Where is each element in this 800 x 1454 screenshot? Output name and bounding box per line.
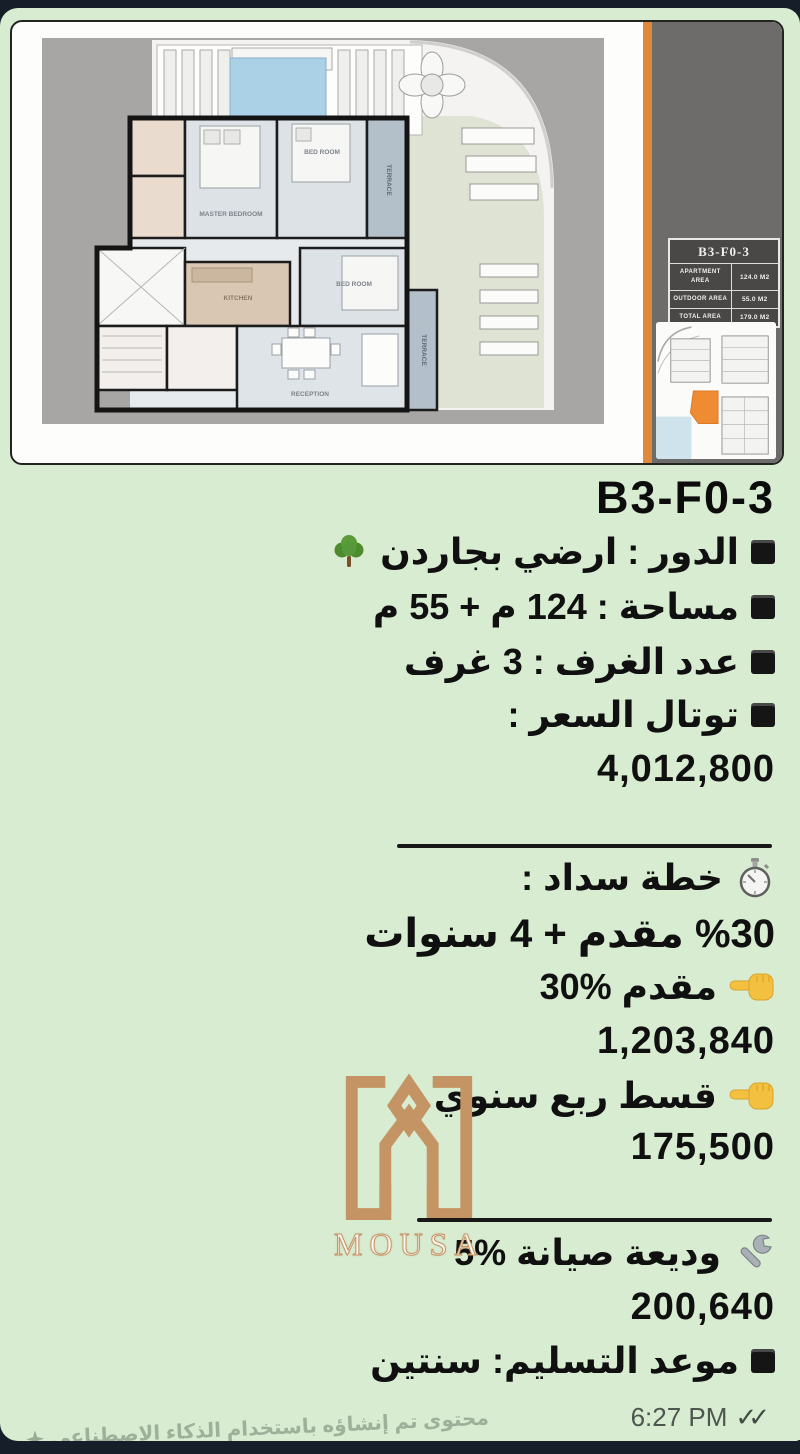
room-label-bed-top: BED ROOM	[304, 149, 340, 156]
downpayment-value: 1,203,840	[597, 1020, 775, 1063]
brand-watermark: MOUSA	[334, 1074, 484, 1263]
installment-value: 175,500	[631, 1126, 775, 1169]
unit-table-title: B3-F0-3	[670, 240, 778, 264]
divider-line	[397, 844, 772, 848]
floor-line-text: الدور : ارضي بجاردن	[380, 531, 739, 573]
whatsapp-chat-screen: MASTER BEDROOM BED ROOM BED ROOM KITCHEN…	[0, 0, 800, 1454]
payment-plan-heading: خطة سداد :	[521, 856, 775, 900]
wrench-icon	[733, 1232, 775, 1274]
rooms-line: عدد الغرف : 3 غرف	[404, 641, 775, 683]
total-price-line: توتال السعر :	[507, 694, 775, 736]
table-row: OUTDOOR AREA 55.0 M2	[670, 291, 778, 309]
black-square-icon	[751, 1349, 775, 1373]
delivery-text: موعد التسليم: سنتين	[370, 1340, 739, 1382]
maintenance-value-line: 200,640	[631, 1286, 775, 1329]
maintenance-line: وديعة صيانة %5	[454, 1232, 775, 1274]
tree-icon	[330, 533, 368, 571]
total-price-label: توتال السعر :	[507, 694, 739, 736]
room-label-master: MASTER BEDROOM	[199, 211, 262, 218]
timestamp: 6:27 PM	[631, 1402, 728, 1433]
area-row-value: 124.0 M2	[732, 264, 778, 290]
room-label-bed-mid: BED ROOM	[336, 281, 372, 288]
area-row-label: APARTMENT AREA	[670, 264, 732, 290]
floor-plan-area: MASTER BEDROOM BED ROOM BED ROOM KITCHEN…	[42, 38, 604, 424]
floor-plan-graphic: MASTER BEDROOM BED ROOM BED ROOM KITCHEN…	[42, 38, 604, 424]
black-square-icon	[751, 650, 775, 674]
total-price-value: 4,012,800	[597, 748, 775, 791]
payment-heading-text: خطة سداد :	[521, 857, 723, 899]
black-square-icon	[751, 595, 775, 619]
brand-name: MOUSA	[334, 1226, 484, 1263]
pointing-left-icon	[729, 1079, 775, 1113]
table-row: APARTMENT AREA 124.0 M2	[670, 264, 778, 291]
installment-line: قسط ربع سنوي	[434, 1075, 775, 1117]
pointing-left-icon	[729, 970, 775, 1004]
area-line-text: مساحة : 124 م + 55 م	[373, 586, 739, 628]
maintenance-value: 200,640	[631, 1286, 775, 1329]
area-row-label: OUTDOOR AREA	[670, 291, 732, 308]
unit-area-table: B3-F0-3 APARTMENT AREA 124.0 M2 OUTDOOR …	[668, 238, 780, 328]
black-square-icon	[751, 703, 775, 727]
image-message-bubble[interactable]: MASTER BEDROOM BED ROOM BED ROOM KITCHEN…	[0, 8, 800, 1441]
downpayment-line: مقدم %30	[540, 966, 775, 1008]
chat-background-strip	[0, 1441, 800, 1454]
downpayment-text: مقدم %30	[540, 966, 717, 1008]
mousa-logo-icon	[343, 1074, 475, 1222]
payment-terms-line: %30 مقدم + 4 سنوات	[364, 911, 775, 957]
room-label-terrace-bottom: TERRACE	[420, 334, 427, 366]
accent-stripe	[643, 22, 652, 463]
area-row-value: 55.0 M2	[732, 291, 778, 308]
room-label-kitchen: KITCHEN	[224, 295, 253, 302]
black-square-icon	[751, 540, 775, 564]
maintenance-text: وديعة صيانة %5	[454, 1232, 721, 1274]
delivery-line: موعد التسليم: سنتين	[370, 1340, 775, 1382]
room-label-reception: RECEPTION	[291, 391, 329, 398]
floor-line: الدور : ارضي بجاردن	[330, 531, 775, 573]
highlighted-unit	[690, 391, 718, 423]
unit-info-panel: B3-F0-3 APARTMENT AREA 124.0 M2 OUTDOOR …	[652, 22, 782, 463]
floor-plan-card: MASTER BEDROOM BED ROOM BED ROOM KITCHEN…	[10, 20, 784, 465]
site-key-map	[656, 322, 776, 459]
area-line: مساحة : 124 م + 55 م	[373, 586, 775, 628]
divider-line	[417, 1218, 772, 1222]
room-label-terrace-top: TERRACE	[385, 164, 392, 196]
payment-terms-text: %30 مقدم + 4 سنوات	[364, 911, 775, 957]
downpayment-value-line: 1,203,840	[597, 1020, 775, 1063]
unit-code-title: B3-F0-3	[596, 472, 775, 524]
installment-value-line: 175,500	[631, 1126, 775, 1169]
total-price-value-line: 4,012,800	[597, 748, 775, 791]
stopwatch-icon	[735, 856, 775, 900]
rooms-line-text: عدد الغرف : 3 غرف	[404, 641, 739, 683]
